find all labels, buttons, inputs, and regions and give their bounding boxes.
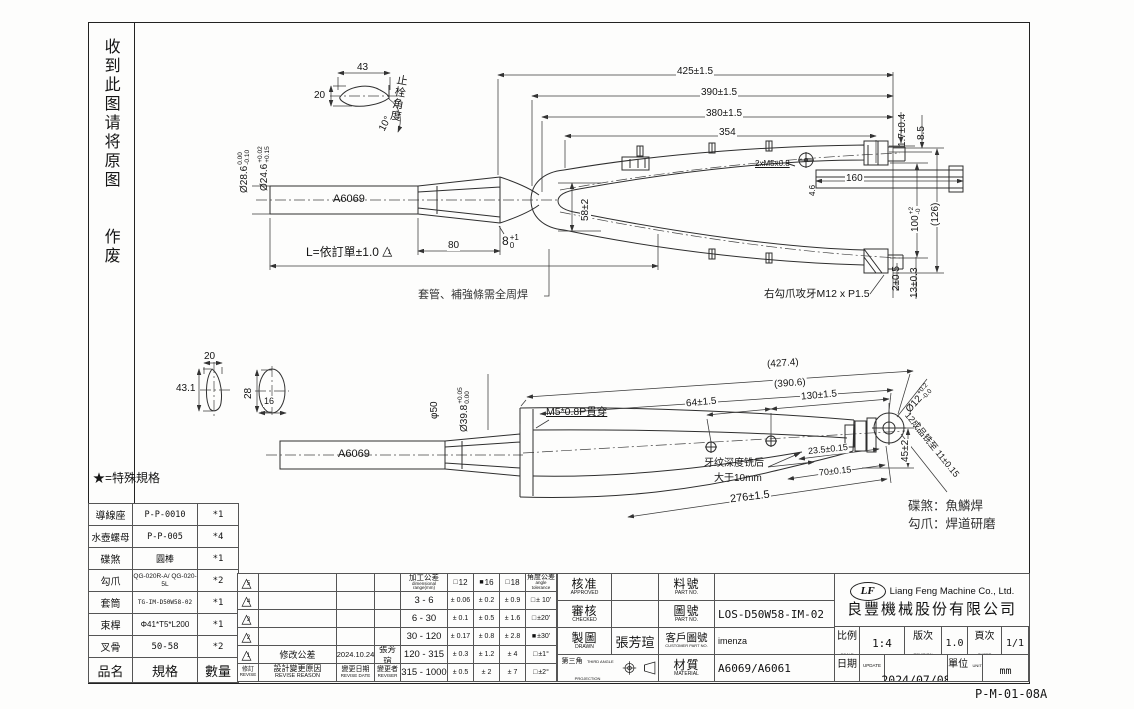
revision-marker: △4 <box>238 592 258 609</box>
angle-tolerance-header: 角度公差 angle tolerance <box>526 574 556 591</box>
part-qty: *4 <box>198 526 238 547</box>
company-name-zh: 良豐機械股份有限公司 <box>847 602 1017 618</box>
projection-cell: 第三角 THIRD ANGLE PROJECTION <box>558 655 658 681</box>
finish-note-disc: 碟煞：魚鱗焊 <box>908 500 983 514</box>
finish-note-hook: 勾爪：焊道研磨 <box>908 518 996 532</box>
dim-od246-label: Ø24.6 +0.02+0.15 <box>258 146 271 191</box>
revision-date: 2024.10.24 <box>337 646 374 663</box>
company-name-en: Liang Feng Machine Co., Ltd. <box>890 587 1015 597</box>
part-name: 碟煞 <box>89 548 132 569</box>
customer-no-label: 客戶圖號 CUSTOMER PART NO. <box>659 628 714 654</box>
revise-col-header: 修訂 REVISE <box>238 664 258 681</box>
revision-marker: △1 <box>238 646 258 663</box>
revision-marker: △5 <box>238 574 258 591</box>
checked-value <box>612 601 658 627</box>
dim-80-label: 80 <box>447 240 460 251</box>
part-name: 叉骨 <box>89 636 132 657</box>
revision-triangle-1: △1 <box>382 245 395 258</box>
part-no-label: 料號 PART NO. <box>659 574 714 600</box>
reviser-col-header: 變更者 REVISER <box>375 664 400 681</box>
part-spec: 50-58 <box>133 636 197 657</box>
part-qty: *2 <box>198 570 238 591</box>
dim-3906-label: (390.6) <box>773 377 807 390</box>
dim-354-label: 354 <box>718 127 737 138</box>
approved-value <box>612 574 658 600</box>
reason-col-header: 設計變更原因 REVISE REASON <box>259 664 336 681</box>
weld-note: 套管、補強條需全周焊 <box>418 289 528 301</box>
part-number-block: 料號 PART NO. 圖號 PART NO. LOS-D50W58-IM-02… <box>658 573 835 682</box>
material-label: 材質 MATERIAL <box>659 655 714 681</box>
hook-thread-note: 右勾爪攻牙M12 x P1.5 <box>764 289 870 301</box>
dim-1p7-label: 1.7±0.4 <box>897 114 908 147</box>
dim-45-label: 45±2 <box>900 439 911 463</box>
tolerance-range-header: 加工公差 dimensional range(mm) <box>401 574 447 591</box>
parts-header-name: 品名 <box>89 658 132 682</box>
sheet-label: 頁次 SHEET <box>968 627 1001 654</box>
company-logo: LF <box>850 582 886 601</box>
approval-block: 核准 APPROVED 審核 CHECKED 製圖 DRAWN 張芳瑄 第三角 … <box>557 573 659 682</box>
grade-12-header: □12 <box>448 574 473 591</box>
dim-58-label: 58±2 <box>580 198 591 222</box>
drawn-label: 製圖 DRAWN <box>558 628 611 654</box>
unit-value: mm <box>983 655 1028 681</box>
engineering-drawing-sheet: 收到此图请将原图 作废 <box>0 0 1134 709</box>
dim-4274-label: (427.4) <box>766 357 800 370</box>
material-label-bottom: A6069 <box>338 448 370 460</box>
material-value: A6069/A6061 <box>715 655 834 681</box>
part-spec: QG-020R-A/ QG-020-5L <box>133 570 197 591</box>
revision-marker: △3 <box>238 610 258 627</box>
dim-126-label: (126) <box>930 202 941 227</box>
part-no-value <box>715 574 834 600</box>
revision-value: 1.0 <box>942 627 967 654</box>
thread-depth-note-1: 牙纹深度铣后 <box>704 458 764 469</box>
part-qty: *1 <box>198 592 238 613</box>
dim-o50-label: φ50 <box>429 401 440 419</box>
form-number: P-M-01-08A <box>975 688 1047 701</box>
third-angle-symbol-icon <box>622 659 658 677</box>
date-label: 日期 DATE <box>835 655 859 681</box>
part-name: 套筒 <box>89 592 132 613</box>
m5-through-note: M5*0.8P貫穿 <box>546 407 607 419</box>
part-spec: Φ41*T5*L200 <box>133 614 197 635</box>
approved-label: 核准 APPROVED <box>558 574 611 600</box>
bottom-view-dimensions <box>199 363 947 517</box>
unit-label: 單位 UNIT <box>948 655 982 681</box>
parts-list-table: 導線座 P-P-0010 *1 水壺螺母 P-P-005 *4 碟煞 圓棒 *1… <box>88 503 239 683</box>
detail-dim-43: 43 <box>357 62 368 73</box>
part-spec: P-P-005 <box>133 526 197 547</box>
special-spec-note: ★=特殊規格 <box>93 472 160 485</box>
part-qty: *1 <box>198 548 238 569</box>
dim-8-label: 8 +10 <box>502 234 519 250</box>
detail-dim-20: 20 <box>314 90 325 101</box>
detail-b-dim-28: 28 <box>243 388 254 399</box>
scale-label: 比例 SCALE <box>835 627 859 654</box>
dim-160-label: 160 <box>845 173 864 184</box>
revision-by: 張芳瑄 <box>375 646 400 663</box>
detail-b-dim-16: 16 <box>263 397 275 407</box>
part-spec: 圓棒 <box>133 548 197 569</box>
detail-b-dim-20: 20 <box>204 351 215 362</box>
dim-425-label: 425±1.5 <box>676 66 714 77</box>
part-qty: *2 <box>198 636 238 657</box>
dim-o398-label: Ø39.8 +0.050.00 <box>458 387 471 432</box>
customer-no-value: imenza <box>715 628 834 654</box>
grade-18-header: □18 <box>500 574 525 591</box>
scale-value: 1:4 <box>860 627 904 654</box>
dim-13-label: 13±0.3 <box>909 267 920 298</box>
revision-label: 版次 REVISION <box>905 627 941 654</box>
m5-bolt-note: 2xM5x0.8 <box>755 160 790 169</box>
parts-header-qty: 數量 <box>198 658 238 682</box>
drawn-value: 張芳瑄 <box>612 628 658 654</box>
thread-depth-note-2: 大于10mm <box>714 473 762 484</box>
parts-header-spec: 規格 <box>133 658 197 682</box>
revision-reason: 修改公差 <box>259 646 336 663</box>
date-value: 2024/07/08 <box>885 655 947 681</box>
part-spec: P-P-0010 <box>133 504 197 525</box>
part-name: 導線座 <box>89 504 132 525</box>
sheet-value: 1/1 <box>1002 627 1028 654</box>
part-name: 束桿 <box>89 614 132 635</box>
company-cell: LF Liang Feng Machine Co., Ltd. 良豐機械股份有限… <box>835 574 1029 626</box>
drawing-no-value: LOS-D50W58-IM-02 <box>715 601 834 627</box>
dim-4p6-label: 4.6 <box>809 185 818 196</box>
dim-2-label: 2±0.5 <box>891 266 902 291</box>
dim-od286-label: Ø28.6 0.00-0.10 <box>238 150 251 193</box>
material-label-top: A6069 <box>333 193 365 205</box>
date-col-header: 變更日期 REVISE DATE <box>337 664 374 681</box>
checked-label: 審核 CHECKED <box>558 601 611 627</box>
part-qty: *1 <box>198 504 238 525</box>
dim-8p5-label: 8.5 <box>916 126 927 140</box>
part-name: 水壺螺母 <box>89 526 132 547</box>
part-qty: *1 <box>198 614 238 635</box>
revision-marker: △2 <box>238 628 258 645</box>
dim-380-label: 380±1.5 <box>705 108 743 119</box>
part-spec: TG-IM-D50W58-02 <box>133 592 197 613</box>
grade-16-header: ■16 <box>474 574 499 591</box>
company-block: LF Liang Feng Machine Co., Ltd. 良豐機械股份有限… <box>834 573 1030 682</box>
drawing-no-label: 圖號 PART NO. <box>659 601 714 627</box>
part-name: 勾爪 <box>89 570 132 591</box>
detail-b-dim-431: 43.1 <box>176 383 195 394</box>
dim-390-label: 390±1.5 <box>700 87 738 98</box>
dim-100-label: 100 +2-0 <box>909 206 922 233</box>
length-note: L=依訂單±1.0 △1 <box>306 245 395 259</box>
revision-tolerance-table: △5 加工公差 dimensional range(mm) □12 ■16 □1… <box>237 573 557 682</box>
